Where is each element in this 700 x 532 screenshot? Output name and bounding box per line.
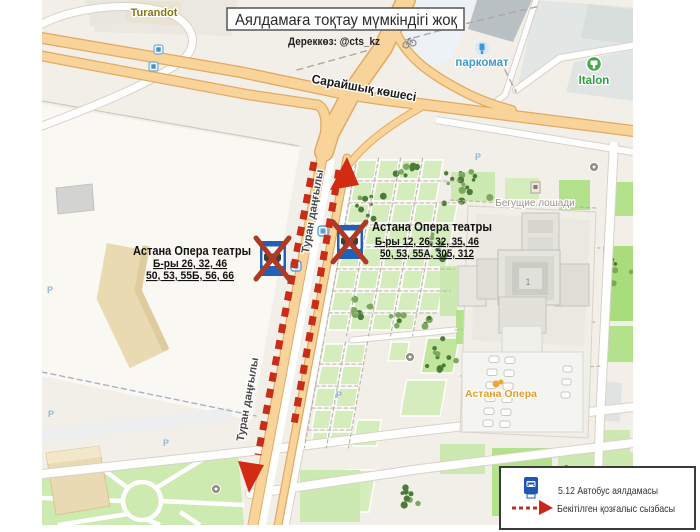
svg-text:Астана Опера: Астана Опера bbox=[465, 388, 537, 400]
svg-text:1: 1 bbox=[525, 277, 530, 287]
svg-text:Б-ры 26, 32, 46: Б-ры 26, 32, 46 bbox=[153, 258, 227, 270]
svg-text:Аялдамаға тоқтау мүмкіндігі жо: Аялдамаға тоқтау мүмкіндігі жоқ bbox=[235, 12, 458, 29]
svg-text:Р: Р bbox=[48, 409, 54, 419]
svg-text:Р: Р bbox=[336, 390, 342, 400]
svg-text:Italon: Italon bbox=[579, 75, 610, 87]
svg-text:паркомат: паркомат bbox=[455, 57, 509, 69]
svg-text:50, 53, 55А, 305, 312: 50, 53, 55А, 305, 312 bbox=[380, 248, 474, 260]
svg-text:Дереккөз: @cts_kz: Дереккөз: @cts_kz bbox=[288, 36, 380, 48]
svg-text:50, 53, 55Б, 56, 66: 50, 53, 55Б, 56, 66 bbox=[146, 270, 234, 282]
svg-text:Turandot: Turandot bbox=[131, 7, 178, 19]
svg-text:Р: Р bbox=[475, 152, 481, 162]
svg-text:Бегущие лошади: Бегущие лошади bbox=[495, 198, 574, 209]
svg-text:Бекітілген қозғалыс сызбасы: Бекітілген қозғалыс сызбасы bbox=[557, 503, 675, 515]
svg-text:5.12 Автобус аялдамасы: 5.12 Автобус аялдамасы bbox=[558, 485, 658, 497]
svg-text:Р: Р bbox=[163, 438, 169, 448]
svg-text:Б-ры 12, 26, 32, 35, 46: Б-ры 12, 26, 32, 35, 46 bbox=[375, 236, 479, 248]
svg-text:Астана Опера театры: Астана Опера театры bbox=[372, 220, 492, 234]
svg-text:Р: Р bbox=[47, 285, 53, 295]
svg-text:Астана Опера театры: Астана Опера театры bbox=[133, 244, 251, 258]
